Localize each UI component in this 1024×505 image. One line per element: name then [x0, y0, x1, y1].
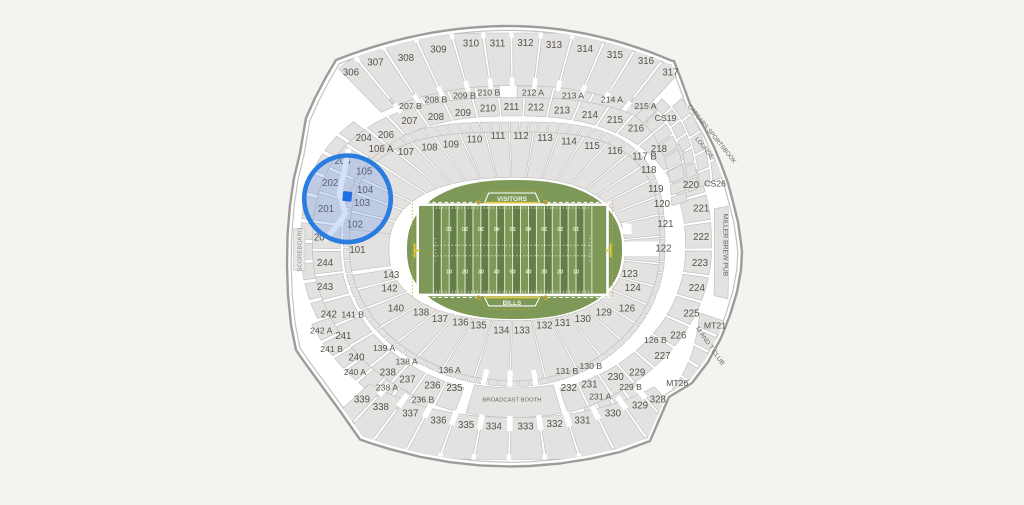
svg-text:215: 215: [607, 115, 623, 126]
svg-text:240: 240: [348, 352, 365, 363]
svg-text:227: 227: [654, 351, 670, 362]
svg-text:334: 334: [486, 422, 503, 433]
svg-text:130: 130: [575, 314, 592, 325]
svg-text:113: 113: [537, 133, 552, 144]
svg-text:330: 330: [605, 409, 622, 420]
svg-text:40: 40: [525, 225, 531, 231]
svg-text:231: 231: [581, 379, 597, 390]
svg-text:136 A: 136 A: [439, 365, 461, 375]
svg-text:335: 335: [458, 420, 474, 431]
svg-text:210: 210: [480, 104, 497, 115]
svg-text:123: 123: [622, 269, 638, 280]
svg-text:215 A: 215 A: [634, 101, 656, 111]
svg-text:216: 216: [628, 124, 644, 135]
svg-text:MT21: MT21: [704, 321, 726, 331]
svg-text:207: 207: [401, 116, 417, 127]
svg-text:207 B: 207 B: [399, 101, 422, 111]
svg-text:238: 238: [380, 367, 396, 378]
svg-text:226: 226: [670, 330, 686, 341]
svg-text:237: 237: [399, 374, 415, 385]
svg-text:209: 209: [455, 108, 471, 119]
svg-text:40: 40: [494, 225, 500, 231]
svg-text:240 A: 240 A: [344, 367, 366, 377]
svg-text:115: 115: [584, 141, 599, 152]
svg-text:225: 225: [683, 308, 699, 319]
svg-text:129: 129: [596, 308, 612, 319]
svg-text:101: 101: [349, 245, 365, 256]
svg-text:135: 135: [471, 320, 487, 331]
svg-text:30: 30: [478, 225, 484, 231]
svg-text:118: 118: [641, 165, 656, 176]
svg-text:20: 20: [557, 225, 563, 231]
svg-text:310: 310: [463, 39, 480, 50]
svg-text:50: 50: [510, 225, 516, 231]
svg-text:235: 235: [446, 383, 462, 394]
svg-text:238 A: 238 A: [376, 383, 398, 393]
svg-text:229: 229: [629, 367, 645, 378]
svg-text:SCOREBOARD: SCOREBOARD: [298, 228, 304, 272]
svg-text:213: 213: [554, 106, 570, 117]
svg-text:241 B: 241 B: [320, 344, 343, 354]
svg-text:314: 314: [577, 44, 594, 55]
svg-text:204: 204: [356, 133, 373, 144]
svg-text:10: 10: [446, 225, 452, 231]
svg-text:231 A: 231 A: [589, 392, 611, 402]
svg-text:236 B: 236 B: [412, 394, 435, 404]
svg-text:223: 223: [692, 258, 708, 269]
svg-text:308: 308: [398, 53, 414, 64]
svg-text:337: 337: [402, 409, 418, 420]
svg-text:MT26: MT26: [666, 378, 688, 388]
svg-text:140: 140: [388, 304, 405, 315]
svg-text:130 B: 130 B: [579, 361, 602, 371]
svg-text:138 A: 138 A: [395, 356, 417, 366]
svg-text:331: 331: [574, 416, 590, 427]
svg-text:142: 142: [382, 283, 398, 294]
svg-text:124: 124: [625, 283, 642, 294]
svg-text:20: 20: [462, 225, 468, 231]
svg-text:209 B: 209 B: [453, 91, 476, 101]
svg-text:224: 224: [689, 283, 706, 294]
svg-text:316: 316: [638, 56, 654, 67]
svg-text:MILLER BREW PUB: MILLER BREW PUB: [722, 214, 729, 277]
svg-text:218: 218: [651, 144, 667, 155]
svg-text:122: 122: [655, 243, 671, 254]
svg-text:40: 40: [525, 269, 531, 275]
svg-text:309: 309: [430, 45, 446, 56]
svg-text:138: 138: [413, 308, 429, 319]
svg-text:232: 232: [561, 383, 577, 394]
svg-text:244: 244: [317, 258, 334, 269]
svg-text:134: 134: [493, 326, 510, 337]
svg-text:BROADCAST BOOTH: BROADCAST BOOTH: [482, 397, 541, 403]
svg-text:20: 20: [557, 269, 563, 275]
svg-text:108: 108: [421, 143, 437, 154]
svg-text:241: 241: [335, 331, 351, 342]
svg-text:243: 243: [317, 282, 333, 293]
svg-text:328: 328: [650, 395, 666, 406]
svg-text:131: 131: [555, 318, 571, 329]
svg-text:132: 132: [536, 320, 552, 331]
svg-text:10: 10: [446, 269, 452, 275]
svg-text:208: 208: [428, 112, 444, 123]
svg-text:119: 119: [648, 184, 663, 195]
svg-text:111: 111: [491, 131, 506, 142]
svg-text:20: 20: [462, 269, 468, 275]
svg-text:10: 10: [573, 225, 579, 231]
svg-text:317: 317: [662, 68, 678, 79]
svg-text:313: 313: [546, 40, 562, 51]
svg-text:CS26: CS26: [704, 179, 726, 189]
svg-text:312: 312: [517, 38, 533, 49]
svg-text:236: 236: [424, 380, 440, 391]
svg-text:BILLS: BILLS: [503, 300, 522, 307]
svg-text:206: 206: [378, 130, 394, 141]
svg-text:220: 220: [683, 180, 700, 191]
svg-text:141 B: 141 B: [341, 310, 364, 320]
svg-text:214: 214: [582, 110, 599, 121]
svg-text:106 A: 106 A: [369, 144, 394, 155]
svg-text:137: 137: [432, 314, 448, 325]
svg-text:242 A: 242 A: [310, 326, 332, 336]
svg-text:208 B: 208 B: [425, 95, 448, 105]
svg-text:221: 221: [693, 203, 709, 214]
svg-text:126 B: 126 B: [644, 335, 667, 345]
svg-text:143: 143: [383, 270, 399, 281]
svg-text:114: 114: [561, 137, 577, 148]
svg-text:211: 211: [504, 102, 519, 113]
svg-text:333: 333: [518, 422, 534, 433]
svg-text:338: 338: [373, 402, 389, 413]
svg-text:120: 120: [654, 199, 671, 210]
svg-text:10: 10: [573, 269, 579, 275]
svg-text:110: 110: [467, 135, 483, 146]
svg-text:214 A: 214 A: [601, 95, 623, 105]
svg-text:139 A: 139 A: [373, 343, 395, 353]
svg-text:116: 116: [607, 146, 622, 157]
svg-text:VISITORS: VISITORS: [497, 196, 527, 203]
svg-text:210 B: 210 B: [478, 88, 501, 98]
svg-text:315: 315: [607, 50, 623, 61]
svg-text:50: 50: [510, 269, 516, 275]
svg-text:311: 311: [490, 39, 505, 50]
svg-text:222: 222: [693, 232, 709, 243]
svg-text:329: 329: [632, 401, 648, 412]
svg-text:112: 112: [513, 131, 528, 142]
svg-text:30: 30: [541, 269, 547, 275]
svg-text:30: 30: [541, 225, 547, 231]
svg-text:332: 332: [547, 419, 563, 430]
svg-text:107: 107: [398, 147, 414, 158]
svg-text:121: 121: [657, 219, 673, 230]
svg-text:40: 40: [494, 269, 500, 275]
svg-text:213 A: 213 A: [562, 91, 584, 101]
svg-text:242: 242: [321, 310, 337, 321]
svg-text:336: 336: [430, 416, 446, 427]
svg-text:229 B: 229 B: [619, 382, 642, 392]
svg-text:136: 136: [452, 317, 468, 328]
svg-text:CS19: CS19: [655, 113, 677, 123]
svg-text:306: 306: [343, 68, 359, 79]
svg-text:131 B: 131 B: [556, 366, 579, 376]
svg-text:212 A: 212 A: [522, 88, 544, 98]
svg-text:126: 126: [619, 304, 635, 315]
svg-text:133: 133: [514, 326, 530, 337]
svg-text:339: 339: [354, 395, 370, 406]
svg-text:30: 30: [478, 269, 484, 275]
svg-text:109: 109: [443, 140, 459, 151]
svg-text:212: 212: [528, 103, 544, 114]
svg-text:307: 307: [367, 58, 383, 69]
